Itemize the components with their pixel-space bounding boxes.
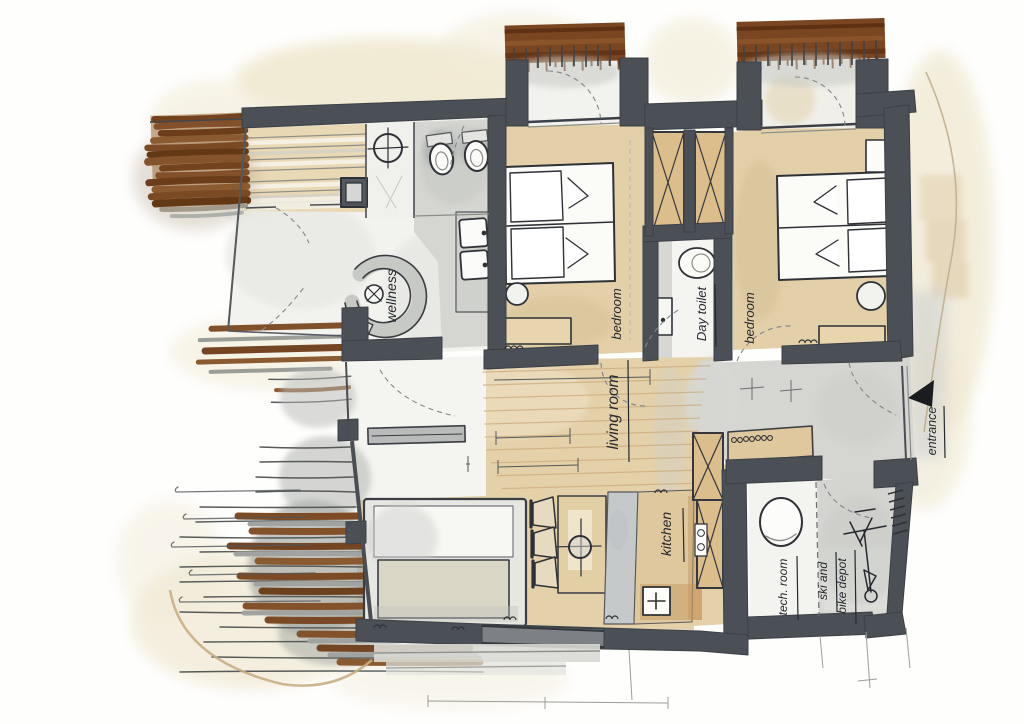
svg-text:wellness: wellness <box>383 269 399 323</box>
svg-text:kitchen: kitchen <box>658 512 674 557</box>
svg-text:living room: living room <box>605 374 622 449</box>
svg-text:bike depot: bike depot <box>835 558 849 614</box>
svg-text:tech. room: tech. room <box>776 559 790 616</box>
svg-text:bedroom: bedroom <box>609 288 624 339</box>
svg-text:entrance: entrance <box>925 407 939 456</box>
svg-text:ski and: ski and <box>816 562 830 600</box>
svg-text:Day toilet: Day toilet <box>694 286 709 342</box>
svg-text:bedroom: bedroom <box>742 292 757 343</box>
